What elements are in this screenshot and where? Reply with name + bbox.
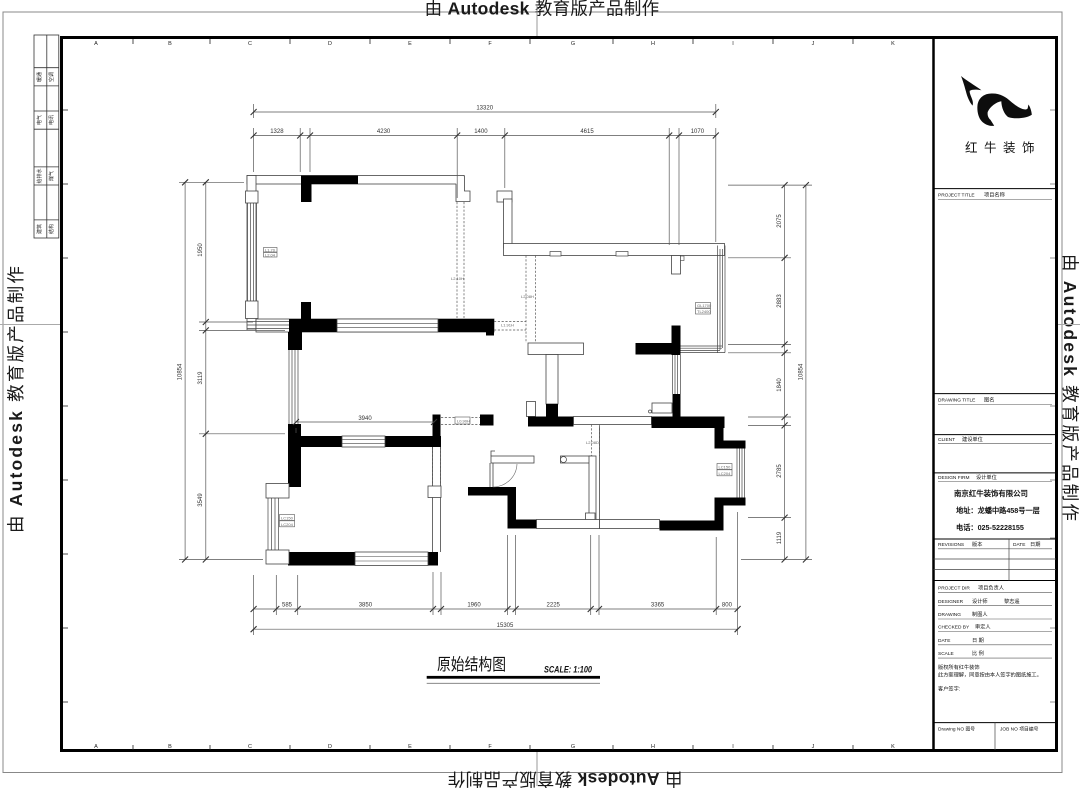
- svg-text:LC204: LC204: [281, 522, 294, 527]
- svg-text:地址：龙蟠中路458号一层: 地址：龙蟠中路458号一层: [956, 506, 1040, 515]
- svg-text:C: C: [248, 41, 252, 47]
- svg-text:TL2400: TL2400: [697, 309, 711, 314]
- svg-text:1950: 1950: [198, 243, 204, 257]
- svg-text:3119: 3119: [198, 371, 204, 385]
- svg-text:1400: 1400: [474, 129, 488, 135]
- svg-text:由 Autodesk 教育版产品制作: 由 Autodesk 教育版产品制作: [448, 769, 683, 788]
- svg-text:红牛装饰: 红牛装饰: [965, 140, 1041, 155]
- svg-text:CLIENT: CLIENT: [938, 437, 955, 443]
- svg-text:煤气: 煤气: [48, 171, 55, 181]
- svg-text:B: B: [168, 41, 172, 47]
- svg-text:日期: 日期: [1030, 541, 1040, 548]
- svg-text:结构: 结构: [48, 224, 55, 234]
- svg-text:由 Autodesk 教育版产品制作: 由 Autodesk 教育版产品制作: [425, 0, 660, 19]
- svg-text:J: J: [812, 744, 815, 750]
- svg-text:DATE: DATE: [1013, 542, 1025, 548]
- svg-text:15305: 15305: [497, 623, 514, 629]
- svg-text:DESIGN FIRM: DESIGN FIRM: [938, 475, 969, 481]
- svg-text:H: H: [651, 41, 655, 47]
- svg-text:Drawing NO 图号: Drawing NO 图号: [938, 727, 975, 733]
- svg-text:设计单位: 设计单位: [976, 473, 997, 481]
- svg-text:800: 800: [722, 603, 733, 609]
- svg-text:1328: 1328: [270, 129, 284, 135]
- svg-text:4230: 4230: [377, 129, 391, 135]
- svg-text:LC150: LC150: [281, 516, 294, 521]
- svg-text:DRAWING TITLE: DRAWING TITLE: [938, 398, 975, 404]
- svg-text:D: D: [328, 41, 332, 47]
- svg-text:CHECKED BY: CHECKED BY: [938, 625, 970, 631]
- svg-text:L0.90H: L0.90H: [457, 419, 470, 424]
- svg-text:审定人: 审定人: [975, 623, 991, 631]
- svg-text:B: B: [168, 744, 172, 750]
- svg-text:H: H: [651, 744, 655, 750]
- svg-text:项目负责人: 项目负责人: [978, 584, 1004, 592]
- svg-text:K: K: [891, 41, 895, 47]
- svg-text:C: C: [248, 744, 252, 750]
- svg-text:G: G: [571, 41, 575, 47]
- svg-text:制图人: 制图人: [972, 610, 988, 618]
- svg-text:L2.10H: L2.10H: [451, 276, 464, 281]
- svg-text:L2.08H: L2.08H: [521, 294, 534, 299]
- svg-text:1960: 1960: [467, 603, 481, 609]
- svg-text:G: G: [571, 744, 575, 750]
- svg-text:L2.08D: L2.08D: [586, 440, 599, 445]
- svg-text:版权所有红牛装饰: 版权所有红牛装饰: [938, 663, 980, 671]
- svg-text:3365: 3365: [651, 603, 665, 609]
- svg-text:DRAWING: DRAWING: [938, 612, 961, 618]
- svg-text:3850: 3850: [359, 603, 373, 609]
- svg-text:暖通: 暖通: [36, 72, 43, 82]
- svg-text:DESIGNER: DESIGNER: [938, 599, 964, 605]
- svg-text:设计师: 设计师: [972, 597, 988, 605]
- svg-text:E: E: [408, 744, 412, 750]
- svg-text:原始结构图: 原始结构图: [437, 655, 506, 674]
- svg-text:DATE: DATE: [938, 638, 950, 644]
- svg-text:REVISIONS: REVISIONS: [938, 542, 964, 548]
- svg-text:1840: 1840: [777, 378, 783, 392]
- svg-text:给排水: 给排水: [36, 168, 43, 183]
- svg-text:10854: 10854: [178, 363, 184, 380]
- svg-text:比 例: 比 例: [972, 649, 984, 657]
- svg-text:4615: 4615: [580, 129, 594, 135]
- svg-text:1119: 1119: [777, 531, 783, 544]
- svg-text:版本: 版本: [972, 540, 982, 548]
- svg-text:3940: 3940: [358, 416, 372, 422]
- svg-text:南京红牛装饰有限公司: 南京红牛装饰有限公司: [954, 489, 1028, 498]
- svg-text:2075: 2075: [777, 214, 783, 228]
- svg-text:SCALE: 1:100: SCALE: 1:100: [544, 665, 593, 676]
- svg-text:项目名称: 项目名称: [984, 191, 1005, 199]
- svg-text:电讯: 电讯: [48, 115, 55, 125]
- svg-text:建设单位: 建设单位: [962, 435, 983, 443]
- svg-text:SCALE: SCALE: [938, 651, 954, 657]
- svg-text:PROJECT TITLE: PROJECT TITLE: [938, 193, 975, 199]
- svg-text:K: K: [891, 744, 895, 750]
- svg-text:A: A: [94, 41, 98, 47]
- svg-text:L1.91H: L1.91H: [501, 323, 514, 328]
- svg-text:10854: 10854: [798, 363, 804, 380]
- svg-text:13320: 13320: [476, 106, 493, 112]
- svg-text:D: D: [328, 744, 332, 750]
- svg-text:JOB NO 项目编号: JOB NO 项目编号: [1000, 726, 1039, 733]
- svg-text:由 Autodesk 教育版产品制作: 由 Autodesk 教育版产品制作: [6, 264, 26, 533]
- svg-text:LC150: LC150: [719, 465, 732, 470]
- svg-text:空调: 空调: [48, 72, 55, 82]
- svg-text:日 期: 日 期: [972, 637, 984, 644]
- svg-text:A: A: [94, 744, 98, 750]
- svg-text:由 Autodesk 教育版产品制作: 由 Autodesk 教育版产品制作: [1060, 254, 1080, 523]
- svg-text:3549: 3549: [198, 493, 204, 507]
- svg-text:GL1700: GL1700: [697, 303, 712, 308]
- svg-text:建筑: 建筑: [36, 224, 43, 234]
- svg-text:585: 585: [282, 603, 293, 609]
- svg-text:此方案理解，同意按由本人签字的图纸施工。: 此方案理解，同意按由本人签字的图纸施工。: [938, 671, 1042, 679]
- svg-text:电气: 电气: [36, 115, 43, 125]
- svg-text:L2.04: L2.04: [265, 253, 276, 258]
- svg-text:1070: 1070: [691, 129, 705, 135]
- svg-text:图名: 图名: [984, 396, 994, 404]
- svg-text:2785: 2785: [777, 464, 783, 478]
- svg-text:PROJECT DIR: PROJECT DIR: [938, 586, 970, 592]
- svg-text:LC204: LC204: [719, 471, 732, 476]
- svg-text:E: E: [408, 41, 412, 47]
- svg-text:客户签字:: 客户签字:: [938, 685, 960, 693]
- svg-text:电话：025-52228155: 电话：025-52228155: [956, 523, 1024, 532]
- svg-text:J: J: [812, 41, 815, 47]
- svg-text:2883: 2883: [777, 294, 783, 308]
- svg-text:2225: 2225: [547, 603, 561, 609]
- svg-text:黎志遥: 黎志遥: [1004, 597, 1020, 605]
